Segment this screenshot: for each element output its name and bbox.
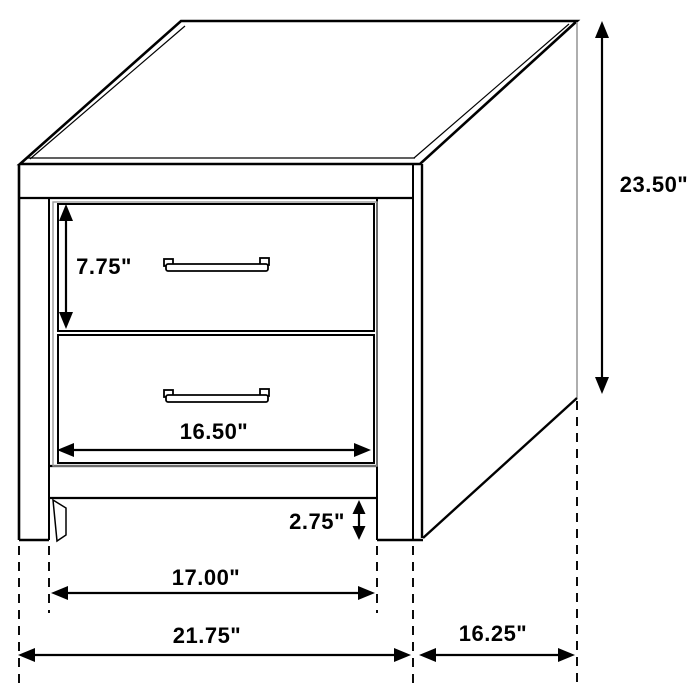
clearance-dimension-arrow [353,500,366,540]
depth-label: 16.25" [459,621,527,647]
tabletop-surface [20,21,577,164]
handle-bar [166,264,268,271]
depth-dimension-arrow [419,648,575,662]
tabletop [20,21,577,164]
line-art [0,0,700,700]
overall-width-label: 21.75" [173,623,241,649]
handle-bar [166,395,268,402]
height-dimension-arrow [595,21,609,394]
inner-width-label: 17.00" [172,565,240,591]
side-panel-bottom-edge [423,398,577,538]
drawer-width-label: 16.50" [180,419,248,445]
left-leg-inner-face [53,500,66,541]
nightstand-dimension-diagram: 23.50" 7.75" 16.50" 2.75" 17.00" 21.75" … [0,0,700,700]
overall-width-dimension-arrow [18,648,411,662]
drawer-height-label: 7.75" [76,254,132,280]
height-label: 23.50" [620,172,688,198]
clearance-label: 2.75" [289,509,345,535]
